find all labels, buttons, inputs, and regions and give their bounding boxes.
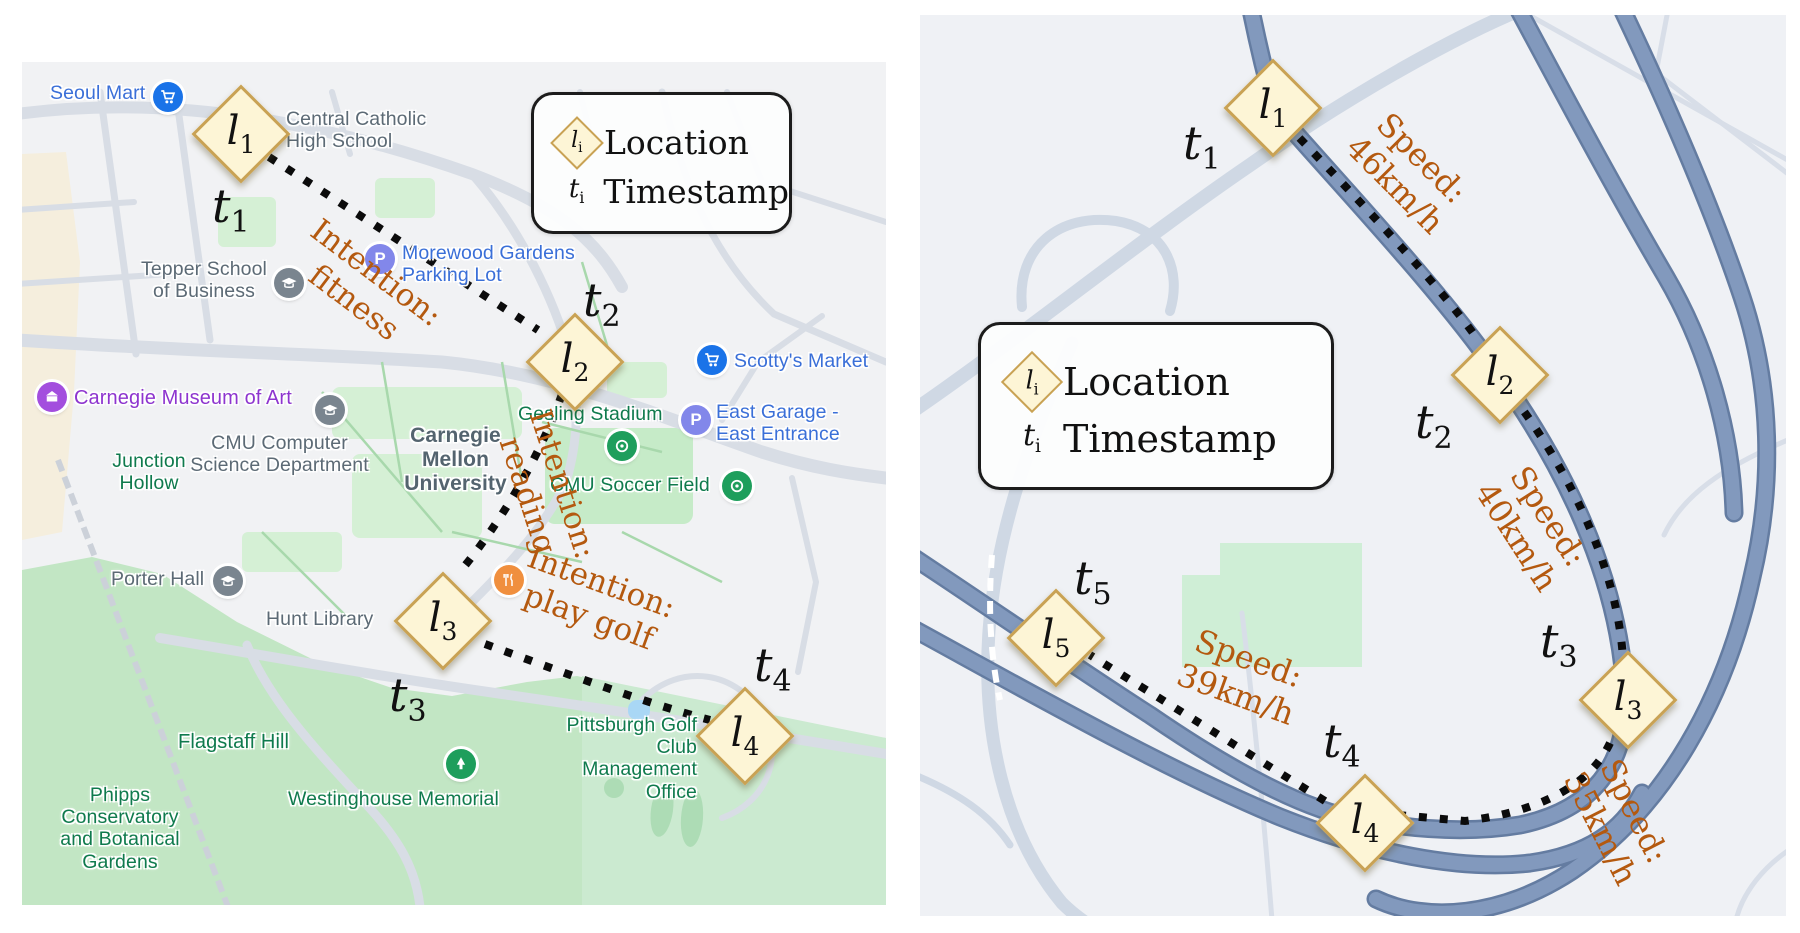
timestamp-t4: t4 [1323, 718, 1361, 773]
figure-trajectory-maps: P P Seoul Mart Central Catholic High Sch… [0, 0, 1800, 933]
poi-label-porter-hall: Porter Hall [111, 568, 204, 590]
poi-label-hunt-library: Hunt Library [266, 608, 373, 630]
poi-label-scottys-market: Scotty's Market [734, 350, 868, 372]
left-map: P P Seoul Mart Central Catholic High Sch… [22, 62, 886, 905]
legend-location-row: li Location [550, 119, 789, 167]
legend-timestamp-row: ti Timestamp [550, 175, 789, 208]
timestamp-t5: t5 [1074, 555, 1112, 610]
timestamp-t4: t4 [754, 642, 792, 697]
poi-label-carnegie-museum: Carnegie Museum of Art [74, 387, 292, 410]
legend-timestamp-symbol: ti [550, 176, 603, 206]
legend-location-label: Location [604, 126, 749, 159]
location-diamond-icon: li [550, 116, 604, 170]
poi-label-westinghouse: Westinghouse Memorial [288, 788, 499, 810]
legend-location-row: li Location [1001, 354, 1331, 410]
location-diamond-icon: li [1001, 351, 1063, 413]
legend-timestamp-label: Timestamp [1063, 420, 1277, 458]
tree-icon [446, 749, 476, 779]
poi-label-central-catholic: Central Catholic High School [286, 108, 426, 152]
parking-icon: P [681, 405, 711, 435]
poi-label-flagstaff-hill: Flagstaff Hill [178, 731, 289, 754]
legend-timestamp-label: Timestamp [603, 175, 789, 208]
poi-label-tepper: Tepper School of Business [138, 258, 270, 302]
legend-location-label: Location [1063, 363, 1230, 401]
legend-timestamp-symbol: ti [1001, 421, 1063, 457]
shopping-cart-icon [153, 82, 183, 112]
timestamp-t3: t3 [389, 672, 427, 727]
timestamp-t3: t3 [1540, 618, 1578, 673]
timestamp-t1: t1 [212, 183, 250, 238]
poi-label-cmu-cs: CMU Computer Science Department [187, 432, 372, 476]
soccer-field-icon [722, 471, 752, 501]
poi-label-junction-hollow: Junction Hollow [110, 450, 188, 494]
poi-label-seoul-mart: Seoul Mart [50, 82, 145, 104]
legend: li Location ti Timestamp [978, 322, 1334, 490]
poi-label-morewood-parking: Morewood Gardens Parking Lot [402, 242, 575, 286]
poi-label-pittsburgh-golf-club: Pittsburgh Golf Club Management Office [550, 714, 697, 803]
right-map: Speed: 46km/h Speed: 40km/h Speed: 39km/… [920, 15, 1786, 916]
poi-label-phipps: Phipps Conservatory and Botanical Garden… [56, 784, 184, 873]
legend-timestamp-row: ti Timestamp [1001, 420, 1331, 458]
poi-label-east-garage: East Garage - East Entrance [716, 401, 840, 445]
graduation-cap-icon [315, 395, 345, 425]
timestamp-t1: t1 [1183, 120, 1221, 175]
timestamp-t2: t2 [583, 277, 621, 332]
stadium-icon [607, 431, 637, 461]
museum-icon [37, 382, 67, 412]
legend: li Location ti Timestamp [531, 92, 792, 234]
graduation-cap-icon [213, 566, 243, 596]
timestamp-t2: t2 [1415, 399, 1453, 454]
shopping-cart-icon [697, 345, 727, 375]
